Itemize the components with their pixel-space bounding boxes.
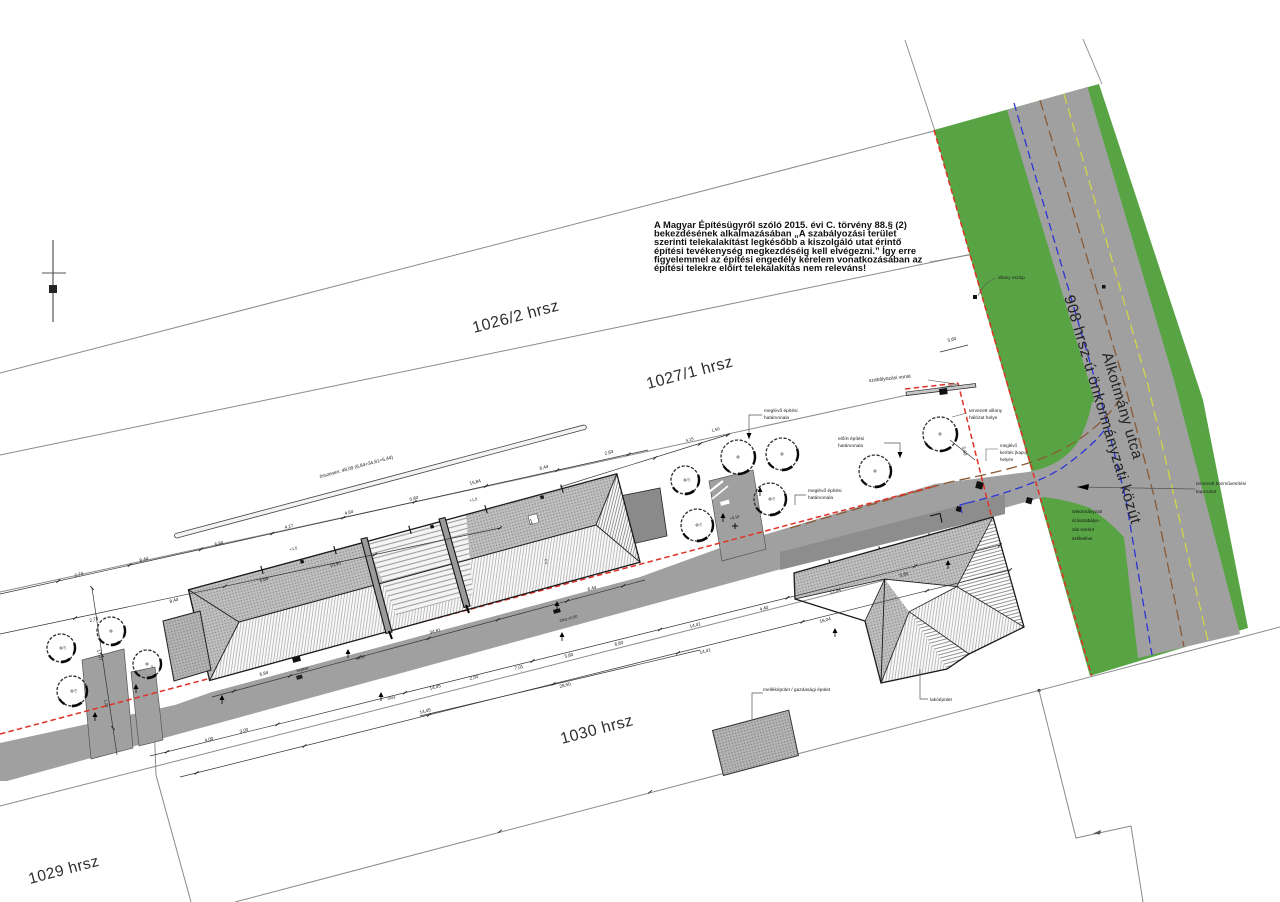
svg-text:kapcsolat: kapcsolat: [1196, 489, 1217, 495]
svg-text:meglévő: meglévő: [1000, 443, 1018, 448]
svg-text:határvonala: határvonala: [838, 443, 863, 449]
svg-text:építési telekre előírt telekal: építési telekre előírt telekalakítás nem…: [654, 262, 866, 273]
svg-text:tervezett közművesítési: tervezett közművesítési: [1196, 481, 1246, 487]
svg-text:tervezett villany: tervezett villany: [969, 408, 1003, 414]
svg-text:előírt építési: előírt építési: [838, 436, 864, 442]
svg-text:zás szerint: zás szerint: [1072, 527, 1095, 532]
svg-text:határvonala: határvonala: [764, 415, 789, 421]
svg-text:önkormányzati: önkormányzati: [1072, 509, 1102, 514]
svg-text:út kiszabályo-: út kiszabályo-: [1072, 518, 1101, 523]
svg-text:szélesítve: szélesítve: [1072, 536, 1093, 541]
svg-text:meglévő építési: meglévő építési: [808, 488, 842, 494]
svg-text:helyén: helyén: [1000, 457, 1014, 462]
svg-text:hálózat helye: hálózat helye: [969, 415, 998, 421]
svg-text:lakóépület: lakóépület: [930, 697, 953, 703]
svg-text:kerítés (kapu): kerítés (kapu): [1000, 450, 1028, 455]
svg-text:határvonala: határvonala: [808, 495, 833, 501]
svg-text:villany oszlop: villany oszlop: [998, 275, 1025, 280]
svg-text:meglévő építési: meglévő építési: [764, 408, 798, 414]
svg-text:melléképület / gazdasági épüle: melléképület / gazdasági épület: [763, 687, 831, 693]
